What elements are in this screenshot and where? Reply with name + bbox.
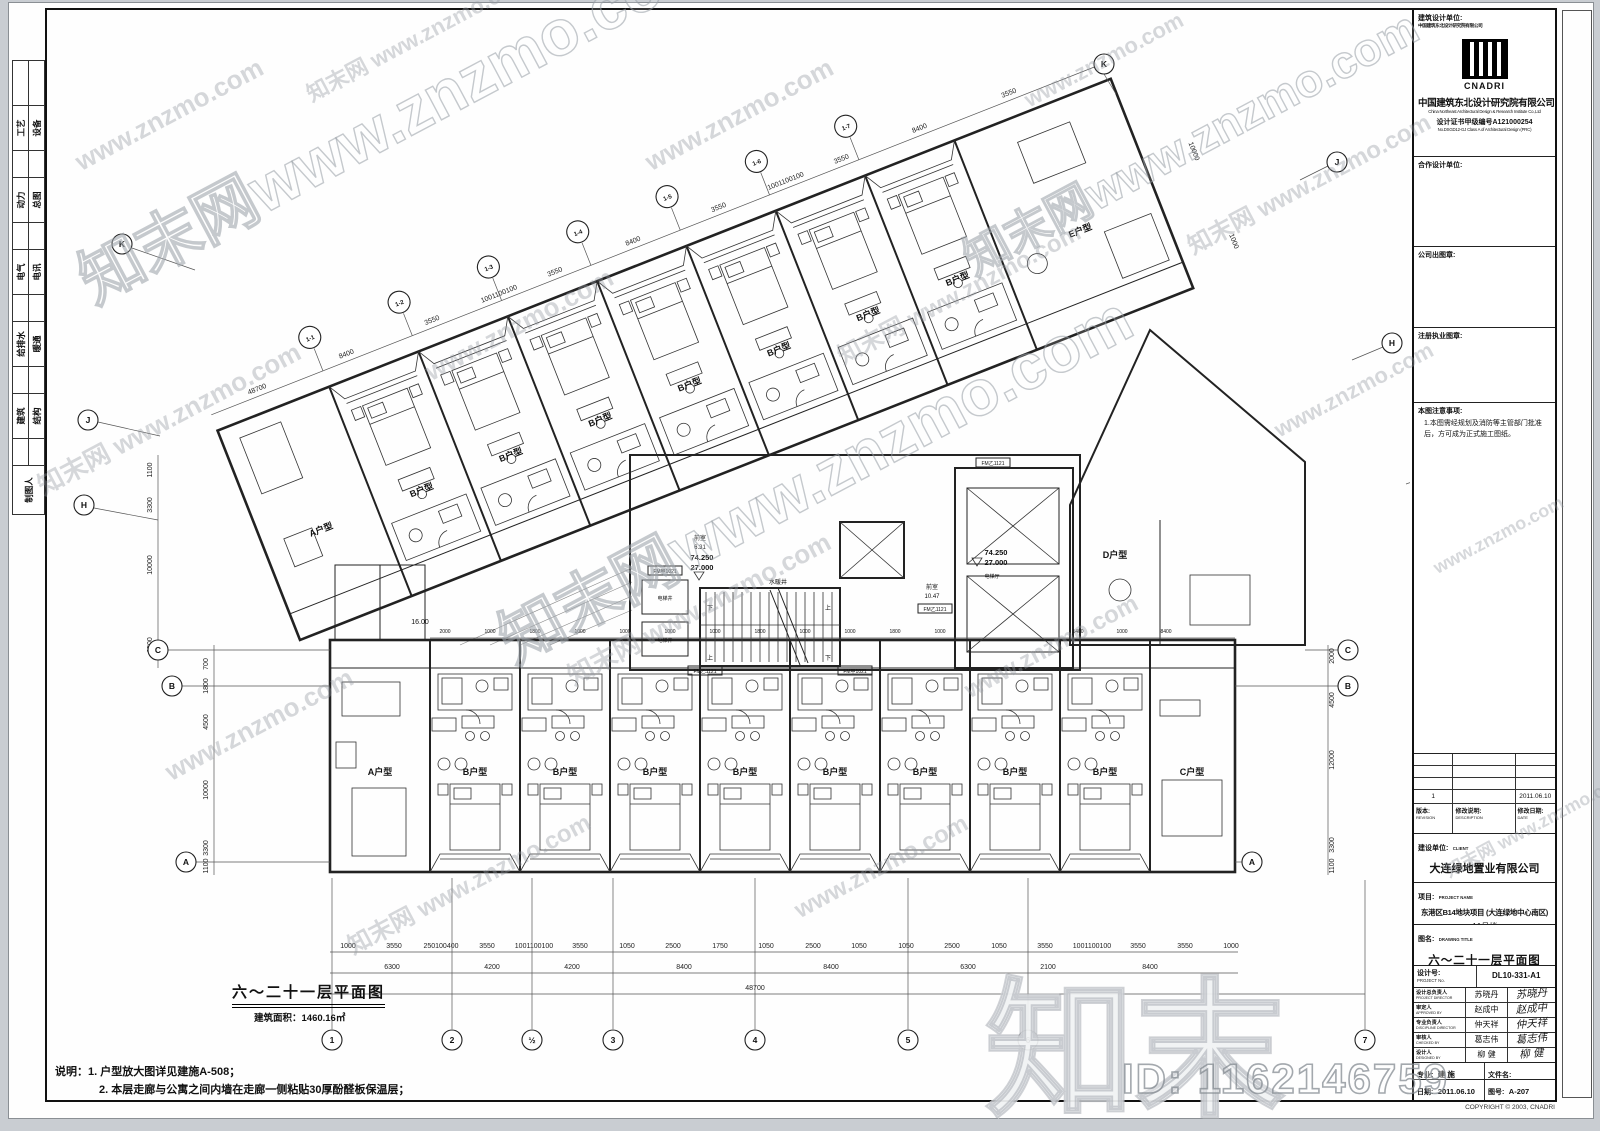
- revision-header-en: DATE: [1516, 815, 1555, 820]
- revision-header-cn: 修改说明:: [1453, 804, 1514, 815]
- tab-row-blank: [13, 367, 44, 394]
- grid-bubble-label: C: [1345, 645, 1351, 655]
- discipline-file-row: 专业: 建 施 文件名: Plan.DWG: [1414, 1063, 1555, 1080]
- tab-label: 设备: [31, 119, 43, 136]
- discipline-value: 建 施: [1438, 1070, 1455, 1079]
- project-no-label-en: PROJECT No.: [1417, 978, 1473, 983]
- dim-label: 1001100100: [1073, 943, 1112, 950]
- client-label: 建设单位:: [1418, 845, 1448, 852]
- tab-jianzhu: 建筑: [13, 394, 29, 438]
- signature-table: 设计总负责人PROJECT DIRECTOR 苏晓丹 苏晓丹 审定人APPROV…: [1414, 988, 1555, 1063]
- project-section: 项目: PROJECT NAME 东港区B14地块项目 (大连绿地中心南区) A…: [1414, 883, 1555, 925]
- dim-label: 2100: [1040, 964, 1056, 971]
- dim-label: 1800: [529, 629, 540, 635]
- plan-area-value: 建筑面积：1460.16㎡: [254, 1010, 345, 1024]
- project-no-label: 设计号:: [1417, 968, 1473, 978]
- tab-label: 电讯: [31, 263, 43, 280]
- tab-geipaishui: 给排水: [13, 322, 29, 366]
- level-marker-icon: [694, 572, 704, 580]
- room-label: 前室: [694, 534, 706, 542]
- tab-gongyi: 工艺: [13, 106, 29, 150]
- tab-blank: [29, 295, 44, 321]
- company-name-en: China Northeast Architectural Design & R…: [1418, 109, 1551, 114]
- signer-role-en: PROJECT DIRECTOR: [1416, 996, 1463, 1000]
- notice-section: 本图注意事项: 1.本图需经规划及消防等主管部门批准后，方可成为正式施工图纸。: [1414, 403, 1555, 753]
- drawing-title: 六～二十一层平面图: [1418, 952, 1551, 966]
- dim-label: 1000: [844, 629, 855, 635]
- tab-blank: [29, 223, 44, 249]
- tab-nuantong: 暖通: [29, 322, 44, 366]
- dim-label: 8400: [676, 964, 692, 971]
- dim-label: 6300: [384, 964, 400, 971]
- unit-label: B户型: [553, 766, 578, 777]
- tab-blank: [13, 223, 29, 249]
- date-cell: 日期: 2011.06.10: [1414, 1080, 1485, 1100]
- tab-row-blank: [13, 439, 44, 466]
- dim-label: 1000: [1116, 629, 1127, 635]
- revision-cell: [1414, 754, 1453, 765]
- unit-label: B户型: [854, 304, 881, 323]
- right-block: D户型: [1070, 330, 1305, 645]
- level-value: 74.250: [691, 553, 714, 562]
- dim-label: 3550: [1130, 943, 1146, 950]
- dim-label: 1050: [898, 943, 914, 950]
- date-value: 2011.06.10: [1438, 1087, 1475, 1096]
- file-label: 文件名:: [1488, 1072, 1511, 1079]
- project-no-section: 设计号: PROJECT No. DL10-331-A1: [1414, 966, 1555, 988]
- unit-label: B户型: [1003, 766, 1028, 777]
- signature-row: 设计人DESIGNED BY 柳 健 柳 健: [1414, 1048, 1555, 1063]
- client-label-en: CLIENT: [1453, 846, 1469, 851]
- tab-label: 工艺: [15, 119, 27, 136]
- cnadri-logo-icon: [1462, 39, 1508, 79]
- unit-label: A户型: [307, 520, 334, 539]
- revision-header: 修改说明: DESCRIPTION: [1453, 804, 1515, 833]
- note-line: 2. 本层走廊与公寓之间内墙在走廊一侧粘贴30厚酚醛板保温层；: [55, 1082, 409, 1100]
- project-label-en: PROJECT NAME: [1439, 895, 1473, 900]
- right-margin-strip: [1562, 10, 1592, 1098]
- grid-bubble-label: 7: [1363, 1035, 1368, 1045]
- unit-label: B户型: [643, 766, 668, 777]
- dim-label: 3300: [147, 497, 154, 513]
- tab-blank: [13, 61, 29, 105]
- drawing-title-section: 图名: DRAWING TITLE 六～二十一层平面图: [1414, 925, 1555, 966]
- discipline-label: 专业:: [1417, 1072, 1433, 1079]
- dim-label: 3550: [479, 943, 495, 950]
- stair-label: 下: [707, 605, 713, 612]
- file-cell: 文件名: Plan.DWG: [1485, 1063, 1555, 1079]
- revision-header: 版本: REVISION: [1414, 804, 1453, 833]
- dim-label: 1000: [934, 629, 945, 635]
- tab-dongli: 动力: [13, 178, 29, 222]
- stair-label: 上: [825, 604, 831, 612]
- dim-label: 1750: [712, 943, 728, 950]
- door-tag: FM甲1021: [843, 669, 867, 675]
- dim-label: 2500: [805, 943, 821, 950]
- grid-bubble-label: C: [155, 645, 161, 655]
- tab-label: 制图人: [23, 477, 35, 503]
- room-area: 10.47: [924, 594, 940, 600]
- revision-cell: [1516, 778, 1555, 789]
- dim-label: 1000: [619, 629, 630, 635]
- door-tag: FM甲1021: [653, 569, 677, 575]
- dim-label: 2000: [439, 629, 450, 635]
- revision-cell: [1453, 778, 1515, 789]
- signer-role-en: APPROVED BY: [1416, 1011, 1463, 1015]
- unit-label: B户型: [765, 339, 792, 358]
- tab-zongtu: 总图: [29, 178, 44, 222]
- revision-row-empty: [1414, 778, 1555, 790]
- level-value: 27.000: [985, 558, 1008, 567]
- signer-role: 审定人: [1416, 1004, 1463, 1011]
- tab-row-blank: [13, 151, 44, 178]
- grid-bubble-label: B: [1345, 681, 1351, 691]
- dim-label: 1000: [1223, 943, 1239, 950]
- lower-wing: A户型 B户型 B户型 B户型 B户型 B户型 B户型 B户型 B户型 C户型: [330, 640, 1235, 872]
- grid-bubble-label: 1: [330, 1035, 335, 1045]
- design-unit-section: 建筑设计单位: 中国建筑东北设计研究院有限公司 CNADRI 中国建筑东北设计研…: [1414, 10, 1555, 157]
- signer-name: 苏晓丹: [1466, 988, 1508, 1002]
- signer-name: 赵成中: [1466, 1003, 1508, 1017]
- tab-zhituren: 制图人: [13, 466, 44, 514]
- unit-label: B户型: [587, 410, 614, 429]
- revision-cell: [1453, 754, 1515, 765]
- project-name: 东港区B14地块项目 (大连绿地中心南区): [1418, 907, 1551, 918]
- dim-label: 1000: [340, 943, 356, 950]
- room-label: 电梯厅: [984, 573, 999, 580]
- dim-label: 1050: [758, 943, 774, 950]
- grid-bubble-label: 5: [906, 1035, 911, 1045]
- license-number: 设计证书甲级编号A121000254: [1418, 117, 1551, 127]
- tab-label: 动力: [15, 191, 27, 208]
- signer-role: 审核人: [1416, 1034, 1463, 1041]
- license-number-en: No.DSGD12-GJ Class A of Architectural De…: [1418, 127, 1551, 132]
- registry-seal-label: 注册执业图章:: [1418, 331, 1551, 341]
- unit-label: B户型: [408, 480, 435, 499]
- dim-label: 4500: [203, 714, 210, 730]
- revision-no: 1: [1414, 790, 1453, 803]
- title-block: 建筑设计单位: 中国建筑东北设计研究院有限公司 CNADRI 中国建筑东北设计研…: [1412, 10, 1555, 1100]
- signer-name: 仲天祥: [1466, 1018, 1508, 1032]
- note-line: 说明：1. 户型放大图详见建施A-508；: [55, 1064, 409, 1082]
- dim-label: 3300: [1329, 837, 1336, 853]
- grid-bubble-label: 6: [1026, 1035, 1031, 1045]
- room-area: 6.31: [694, 545, 706, 551]
- tab-row: 建筑 结构: [13, 394, 44, 439]
- stair-label: 下: [825, 655, 831, 662]
- tab-label: 总图: [31, 191, 43, 208]
- revision-cell: [1516, 754, 1555, 765]
- revision-desc: [1453, 790, 1515, 803]
- dim-label: 1000: [574, 629, 585, 635]
- tab-blank: [13, 295, 29, 321]
- registry-seal-section: 注册执业图章:: [1414, 328, 1555, 403]
- client-section: 建设单位: CLIENT 大连绿地置业有限公司: [1414, 834, 1555, 883]
- unit-label: B户型: [823, 766, 848, 777]
- logo-name: CNADRI: [1418, 81, 1551, 91]
- unit-label: B户型: [463, 766, 488, 777]
- tab-blank: [13, 367, 29, 393]
- grid-bubble-label: ½: [528, 1035, 535, 1045]
- dim-label: 8400: [1160, 629, 1171, 635]
- tab-row: 工艺 设备: [13, 106, 44, 151]
- shaft-label: 电梯井: [657, 595, 672, 602]
- signer-role-cell: 设计人DESIGNED BY: [1414, 1048, 1466, 1063]
- tab-blank: [13, 151, 29, 177]
- dim-label: 1050: [991, 943, 1007, 950]
- dim-label: 1100: [1329, 858, 1336, 873]
- dim-label: 1800: [754, 629, 765, 635]
- unit-label: B户型: [944, 269, 971, 288]
- unit-label: C户型: [1180, 766, 1205, 777]
- unit-label: D户型: [1103, 549, 1128, 560]
- dim-label: 700: [203, 658, 210, 670]
- dim-label: 1400: [1072, 629, 1083, 635]
- signer-role-en: CHECKED BY: [1416, 1041, 1463, 1045]
- floor-plan-canvas: A户型 B户型 B户型 B户型 B户型 B户型 B户型 B户型 E户型 4870…: [47, 10, 1410, 1098]
- level-value: 74.250: [985, 548, 1008, 557]
- revision-date: 2011.06.10: [1516, 790, 1555, 803]
- dim-label: 2500: [944, 943, 960, 950]
- dim-label: 8400: [823, 964, 839, 971]
- dim-label: 1000: [799, 629, 810, 635]
- signer-name: 葛志伟: [1466, 1033, 1508, 1047]
- revision-row-empty: [1414, 766, 1555, 778]
- revision-header: 修改日期: DATE: [1516, 804, 1555, 833]
- signature-row: 设计总负责人PROJECT DIRECTOR 苏晓丹 苏晓丹: [1414, 988, 1555, 1003]
- company-seal-label: 公司出图章:: [1418, 250, 1551, 260]
- tab-row: 电气 电讯: [13, 250, 44, 295]
- revision-row: 1 2011.06.10: [1414, 790, 1555, 804]
- notice-label: 本图注意事项:: [1418, 406, 1551, 416]
- tab-label: 给排水: [15, 331, 27, 357]
- dim-label: 4200: [564, 964, 580, 971]
- grid-bubble-label: A: [1249, 857, 1255, 867]
- dwg-no-cell: 图号: A-207: [1485, 1080, 1555, 1100]
- tab-blank: [29, 61, 44, 105]
- tab-row: 制图人: [13, 466, 44, 514]
- grid-bubble-label: 3: [611, 1035, 616, 1045]
- grid-bubble-label: H: [1389, 338, 1395, 348]
- signer-name: 柳 健: [1466, 1048, 1508, 1063]
- corridor-value: 16.00: [411, 619, 429, 626]
- dim-label: 1050: [851, 943, 867, 950]
- grid-bubble-label: K: [119, 239, 126, 249]
- dim-label: 1800: [889, 629, 900, 635]
- tab-jiegou: 结构: [29, 394, 44, 438]
- dim-label: 2500: [665, 943, 681, 950]
- grid-bubble-label: H: [81, 500, 87, 510]
- dim-label: 1000: [664, 629, 675, 635]
- design-unit-label: 建筑设计单位:: [1418, 13, 1551, 23]
- signer-role: 设计人: [1416, 1049, 1463, 1056]
- signature-row: 专业负责人DISCIPLINE DIRECTOR 仲天祥 仲天祥: [1414, 1018, 1555, 1033]
- grid-bubble-label: J: [86, 415, 91, 425]
- grid-bubble-label: 4: [753, 1035, 758, 1045]
- discipline-tab-strip: 工艺 设备 动力 总图 电气 电讯 给排水 暖通 建筑 结构 制图人: [12, 60, 45, 515]
- signer-role-cell: 专业负责人DISCIPLINE DIRECTOR: [1414, 1018, 1466, 1032]
- grid-bubble-label: 2: [450, 1035, 455, 1045]
- date-number-row: 日期: 2011.06.10 图号: A-207: [1414, 1080, 1555, 1100]
- dim-label: 1000: [484, 629, 495, 635]
- client-name: 大连绿地置业有限公司: [1418, 860, 1551, 876]
- level-value: 27.000: [691, 563, 714, 572]
- dim-label: 3550: [1177, 943, 1193, 950]
- grid-bubble-label: K: [1101, 59, 1108, 69]
- coop-design-label: 合作设计单位:: [1418, 160, 1551, 170]
- signature: 柳 健: [1507, 1046, 1555, 1063]
- tab-label: 暖通: [31, 335, 43, 352]
- revision-cell: [1453, 766, 1515, 777]
- dim-label: 3550: [386, 943, 402, 950]
- dim-label: 2000: [1329, 648, 1336, 664]
- revision-header-cn: 修改日期:: [1516, 804, 1555, 815]
- company-seal-section: 公司出图章:: [1414, 247, 1555, 329]
- company-name-cn: 中国建筑东北设计研究院有限公司: [1418, 95, 1551, 109]
- tab-label: 电气: [15, 263, 27, 280]
- core: 下 上 上 下 电梯井 电梯井 水暖井 前室 6.31 74.250 27.00…: [411, 455, 1080, 675]
- dim-label: 3550: [1037, 943, 1053, 950]
- plan-title: 六～二十一层平面图: [232, 981, 385, 1008]
- signer-role: 设计总负责人: [1416, 989, 1463, 996]
- unit-label: B户型: [733, 766, 758, 777]
- tab-row: 动力 总图: [13, 178, 44, 223]
- design-unit-sub: 中国建筑东北设计研究院有限公司: [1418, 23, 1551, 29]
- tab-row: 给排水 暖通: [13, 322, 44, 367]
- drawing-title-label: 图名:: [1418, 936, 1434, 943]
- unit-label: B户型: [913, 766, 938, 777]
- revision-cell: [1516, 766, 1555, 777]
- discipline-cell: 专业: 建 施: [1414, 1063, 1485, 1079]
- signature-row: 审核人CHECKED BY 葛志伟 葛志伟: [1414, 1033, 1555, 1048]
- dim-label: 48700: [247, 383, 268, 397]
- dim-label: 12000: [1329, 750, 1336, 770]
- room-label: 前室: [926, 583, 938, 591]
- dim-label: 8400: [1142, 964, 1158, 971]
- level-marker-icon: [972, 558, 982, 566]
- signer-role-en: DESIGNED BY: [1416, 1056, 1463, 1060]
- unit-label: A户型: [368, 766, 393, 777]
- revision-header-en: REVISION: [1414, 815, 1452, 820]
- unit-label: B户型: [497, 445, 524, 464]
- unit-label: B户型: [676, 374, 703, 393]
- tab-blank: [29, 151, 44, 177]
- tab-blank: [29, 439, 44, 465]
- tab-row-blank: [13, 61, 44, 106]
- revision-cell: [1414, 778, 1453, 789]
- dim-label: 10000: [203, 780, 210, 800]
- revision-table: 1 2011.06.10 版本: REVISION 修改说明: DESCRIPT…: [1414, 754, 1555, 835]
- dim-label: 4500: [1329, 692, 1336, 708]
- drawing-title-label-en: DRAWING TITLE: [1439, 937, 1473, 942]
- signer-role-cell: 审定人APPROVED BY: [1414, 1003, 1466, 1017]
- tab-label: 建筑: [15, 407, 27, 424]
- dim-label: 10000: [147, 555, 154, 575]
- tab-row-blank: [13, 295, 44, 322]
- dim-label: 1100: [203, 858, 210, 873]
- date-label: 日期:: [1417, 1089, 1433, 1096]
- project-label: 项目:: [1418, 894, 1434, 901]
- copyright-text: COPYRIGHT © 2003, CNADRI: [1150, 1104, 1555, 1111]
- stair-label: 上: [707, 654, 713, 662]
- tab-blank: [29, 367, 44, 393]
- dim-label: 1001100100: [515, 943, 554, 950]
- dim-label: 1000: [709, 629, 720, 635]
- door-tag: FM乙1121: [694, 668, 717, 675]
- signer-role-en: DISCIPLINE DIRECTOR: [1416, 1026, 1463, 1030]
- signer-role-cell: 设计总负责人PROJECT DIRECTOR: [1414, 988, 1466, 1002]
- grid-bubble-label: A: [183, 857, 189, 867]
- grid-bubble-label: B: [169, 681, 175, 691]
- tab-row-blank: [13, 223, 44, 250]
- dim-label: 250100400: [423, 943, 458, 950]
- project-no-value: DL10-331-A1: [1477, 966, 1555, 987]
- dim-label: 1000: [1227, 233, 1239, 250]
- dim-label: 3300: [203, 840, 210, 856]
- tab-dianxun: 电讯: [29, 250, 44, 294]
- signer-role-cell: 审核人CHECKED BY: [1414, 1033, 1466, 1047]
- door-tag: FM乙1121: [982, 460, 1005, 467]
- dim-label: 6300: [960, 964, 976, 971]
- grid-bubble-label: J: [1335, 157, 1340, 167]
- project-no-label-cell: 设计号: PROJECT No.: [1414, 966, 1477, 987]
- revision-header-en: DESCRIPTION: [1453, 815, 1514, 820]
- revision-header-row: 版本: REVISION 修改说明: DESCRIPTION 修改日期: DAT…: [1414, 804, 1555, 833]
- tab-dianqi: 电气: [13, 250, 29, 294]
- dim-label: 1050: [619, 943, 635, 950]
- tab-label: 结构: [31, 407, 43, 424]
- plan-notes: 说明：1. 户型放大图详见建施A-508； 2. 本层走廊与公寓之间内墙在走廊一…: [55, 1064, 409, 1099]
- dim-label: 1100: [147, 462, 154, 477]
- cad-sheet-page: 工艺 设备 动力 总图 电气 电讯 给排水 暖通 建筑 结构 制图人: [0, 0, 1600, 1131]
- notice-text: 1.本图需经规划及消防等主管部门批准后，方可成为正式施工图纸。: [1418, 419, 1551, 440]
- coop-design-section: 合作设计单位:: [1414, 157, 1555, 247]
- dwg-no-label: 图号:: [1488, 1089, 1504, 1096]
- unit-label: B户型: [1093, 766, 1118, 777]
- signature-row: 审定人APPROVED BY 赵成中 赵成中: [1414, 1003, 1555, 1018]
- tab-shebei: 设备: [29, 106, 44, 150]
- tab-blank: [13, 439, 29, 465]
- revision-header-cn: 版本:: [1414, 804, 1452, 815]
- unit-label: E户型: [1067, 221, 1093, 240]
- revision-row-empty: [1414, 754, 1555, 766]
- dim-label: 10000: [1187, 141, 1201, 162]
- dwg-no-value: A-207: [1509, 1087, 1529, 1096]
- dim-label: 4200: [484, 964, 500, 971]
- revision-cell: [1414, 766, 1453, 777]
- door-tag: FM乙1121: [924, 606, 947, 613]
- shaft-label: 水暖井: [769, 578, 787, 586]
- dim-label: 3550: [572, 943, 588, 950]
- signer-role: 专业负责人: [1416, 1019, 1463, 1026]
